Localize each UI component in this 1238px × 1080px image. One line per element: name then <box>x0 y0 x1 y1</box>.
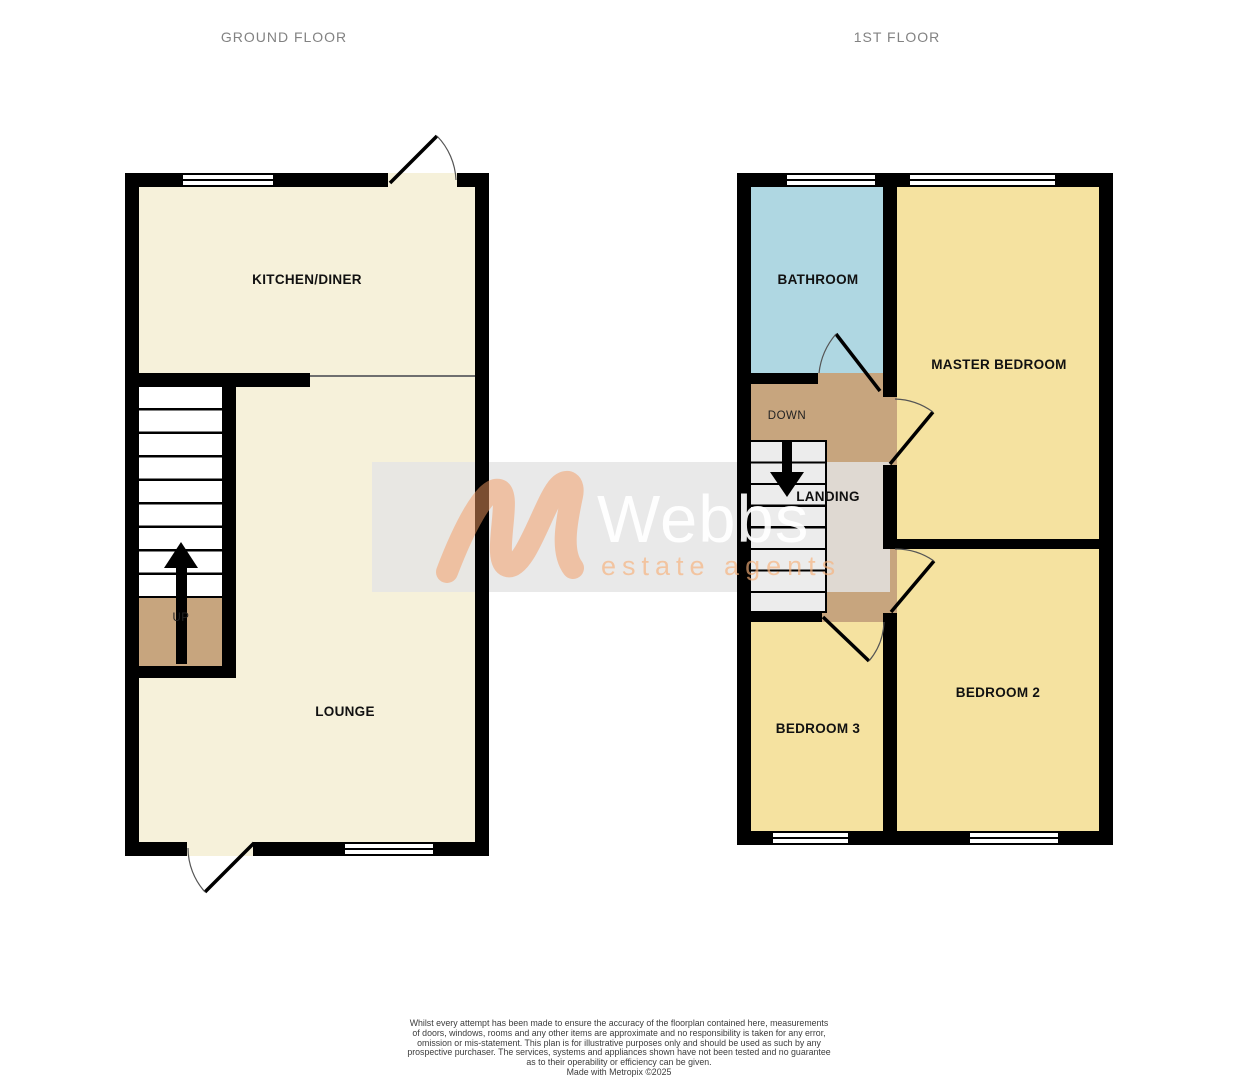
room-label-kitchen-diner: KITCHEN/DINER <box>197 272 417 287</box>
room-label-master-bedroom: MASTER BEDROOM <box>889 357 1109 372</box>
room-label-lounge: LOUNGE <box>235 704 455 719</box>
floor-title-ground: GROUND FLOOR <box>154 29 414 45</box>
wall <box>457 173 489 187</box>
room-label-bathroom: BATHROOM <box>708 272 928 287</box>
brand-tagline: estate agents <box>601 553 841 580</box>
wall <box>125 373 310 387</box>
wall <box>433 842 489 856</box>
wall <box>848 831 970 845</box>
wall <box>737 613 822 622</box>
window <box>183 173 273 187</box>
room-label-landing: LANDING <box>718 489 938 504</box>
door-opening-kitchen <box>388 173 457 187</box>
wall <box>125 173 139 856</box>
script-w-icon <box>433 460 623 595</box>
window <box>970 831 1058 845</box>
wall <box>1058 831 1113 845</box>
stairs-label-up: UP <box>71 612 291 624</box>
room-kitchen-diner <box>139 187 475 387</box>
disclaimer-line: Made with Metropix ©2025 <box>0 1068 1238 1078</box>
floorplan-page: GROUND FLOOR 1ST FLOOR KITCHEN/DINER L <box>0 0 1238 1080</box>
door-opening-lounge <box>187 842 253 856</box>
window <box>345 842 433 856</box>
floor-title-first: 1ST FLOOR <box>767 29 1027 45</box>
stairs-label-down: DOWN <box>677 410 897 422</box>
wall <box>222 373 236 678</box>
up-arrow-head-icon <box>164 542 198 568</box>
wall <box>751 373 818 384</box>
wall <box>737 831 773 845</box>
wall <box>125 842 187 856</box>
wall <box>883 539 1113 549</box>
wall <box>1055 173 1113 187</box>
wall <box>883 465 897 548</box>
open-plan-divider <box>310 375 475 377</box>
room-label-bedroom-3: BEDROOM 3 <box>708 721 928 736</box>
window <box>773 831 848 845</box>
wall <box>125 664 236 678</box>
wall <box>737 173 787 187</box>
wall <box>253 842 345 856</box>
disclaimer: Whilst every attempt has been made to en… <box>0 1019 1238 1078</box>
window <box>787 173 875 187</box>
wall <box>1099 173 1113 845</box>
window <box>910 173 1055 187</box>
wall <box>273 173 388 187</box>
up-arrow-icon <box>176 556 187 664</box>
wall <box>125 173 183 187</box>
room-label-bedroom-2: BEDROOM 2 <box>888 685 1108 700</box>
